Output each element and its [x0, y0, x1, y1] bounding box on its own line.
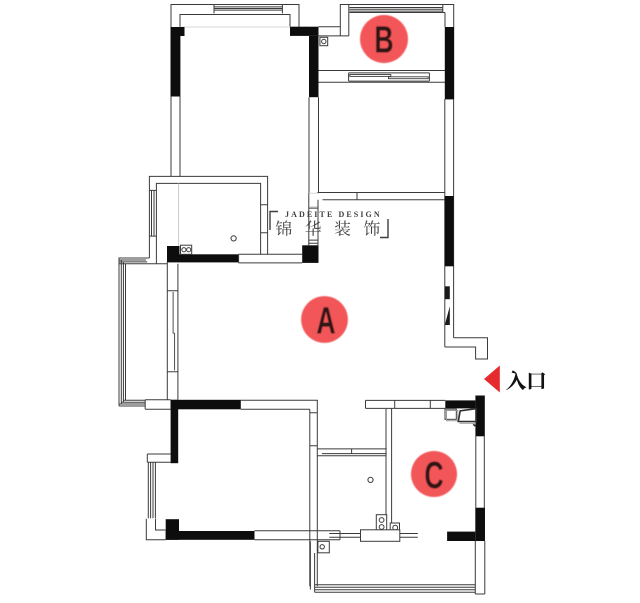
svg-text:JADEITE DESIGN: JADEITE DESIGN	[285, 210, 382, 219]
svg-text:C: C	[424, 453, 443, 496]
svg-text:B: B	[374, 18, 393, 61]
svg-text:A: A	[316, 299, 335, 342]
